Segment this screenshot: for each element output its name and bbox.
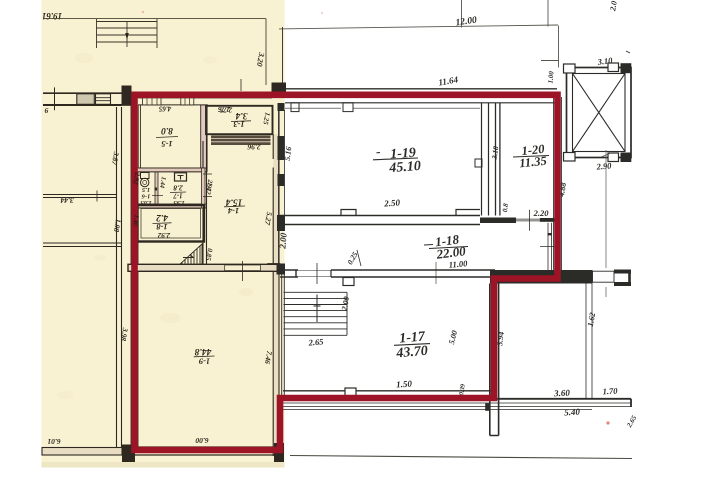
svg-text:44.8: 44.8 xyxy=(194,346,212,356)
svg-text:1-3: 1-3 xyxy=(233,120,245,130)
svg-text:8.0: 8.0 xyxy=(161,125,173,135)
svg-text:15.4: 15.4 xyxy=(225,197,242,207)
svg-text:2.0: 2.0 xyxy=(608,0,619,12)
svg-text:1-5: 1-5 xyxy=(161,139,173,149)
svg-text:6.01: 6.01 xyxy=(47,437,60,446)
svg-text:43.70: 43.70 xyxy=(395,344,429,362)
svg-text:11.00: 11.00 xyxy=(448,258,468,270)
svg-text:1-9: 1-9 xyxy=(198,357,210,367)
svg-text:1.5: 1.5 xyxy=(141,186,150,193)
svg-text:2.00: 2.00 xyxy=(277,232,288,250)
svg-text:2.50: 2.50 xyxy=(383,197,401,208)
svg-text:1-6: 1-6 xyxy=(141,193,150,200)
svg-text:2.75: 2.75 xyxy=(219,106,233,114)
svg-text:5.40: 5.40 xyxy=(564,406,581,417)
svg-text:3.44: 3.44 xyxy=(60,196,74,205)
svg-text:1-8: 1-8 xyxy=(156,222,168,232)
svg-text:19.61: 19.61 xyxy=(42,11,62,21)
svg-text:1-4: 1-4 xyxy=(228,206,239,216)
svg-text:45.10: 45.10 xyxy=(388,159,421,176)
svg-text:11.35: 11.35 xyxy=(519,154,548,171)
svg-text:2.96: 2.96 xyxy=(247,143,261,152)
svg-text:1.70: 1.70 xyxy=(602,386,618,397)
svg-text:3.60: 3.60 xyxy=(553,388,571,399)
svg-text:5.16: 5.16 xyxy=(283,146,294,161)
svg-text:6.00: 6.00 xyxy=(195,436,208,445)
svg-text:1.00: 1.00 xyxy=(546,70,555,83)
svg-text:3.10: 3.10 xyxy=(596,55,614,67)
svg-text:0.8: 0.8 xyxy=(501,202,510,212)
svg-text:4.65: 4.65 xyxy=(158,105,172,113)
svg-text:3.18: 3.18 xyxy=(490,145,501,160)
svg-text:2.20: 2.20 xyxy=(533,208,550,218)
svg-text:2.92: 2.92 xyxy=(157,231,171,239)
svg-text:2.8: 2.8 xyxy=(173,184,184,193)
svg-text:3.4: 3.4 xyxy=(235,110,248,120)
svg-text:9: 9 xyxy=(44,106,48,115)
svg-text:2.65: 2.65 xyxy=(307,336,324,347)
svg-text:1-7: 1-7 xyxy=(173,192,183,200)
svg-text:2.90: 2.90 xyxy=(595,160,612,171)
svg-text:1.50: 1.50 xyxy=(396,378,413,389)
svg-text:4.2: 4.2 xyxy=(156,212,169,222)
